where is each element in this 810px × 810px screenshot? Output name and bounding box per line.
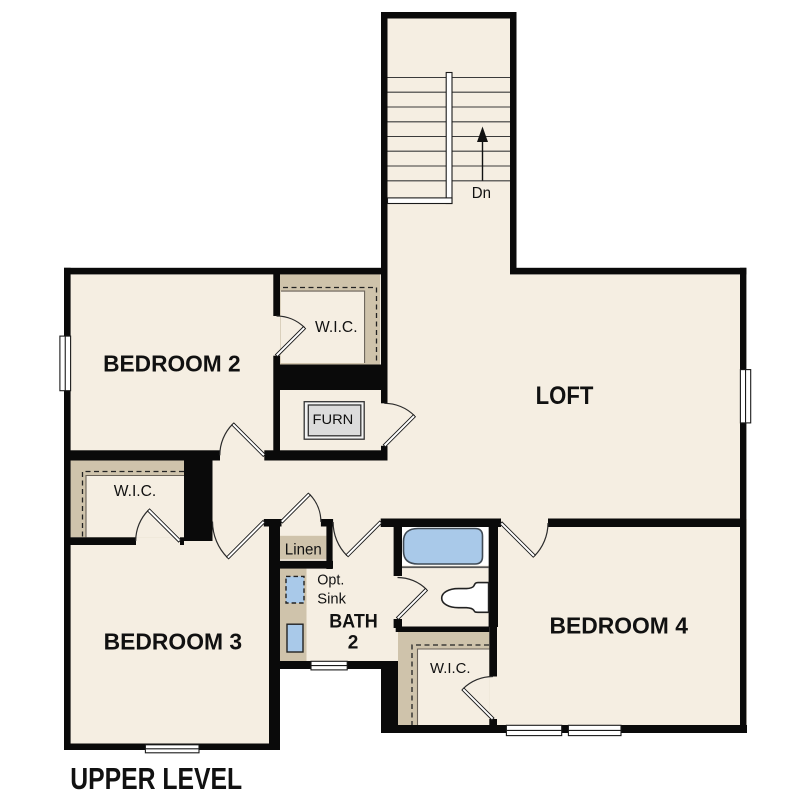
svg-text:W.I.C.: W.I.C. (114, 483, 157, 500)
svg-text:Sink: Sink (317, 590, 346, 607)
svg-text:2: 2 (348, 632, 359, 653)
svg-text:BEDROOM 2: BEDROOM 2 (103, 351, 241, 377)
svg-text:Opt.: Opt. (317, 571, 344, 588)
svg-text:W.I.C.: W.I.C. (430, 661, 471, 677)
svg-text:W.I.C.: W.I.C. (315, 319, 358, 336)
svg-text:FURN: FURN (313, 411, 354, 427)
svg-text:BATH: BATH (329, 612, 378, 633)
svg-text:Linen: Linen (285, 542, 322, 559)
svg-text:LOFT: LOFT (536, 382, 594, 410)
svg-text:Dn: Dn (472, 185, 491, 202)
svg-text:UPPER LEVEL: UPPER LEVEL (70, 761, 242, 796)
svg-text:BEDROOM 3: BEDROOM 3 (104, 628, 243, 654)
svg-text:BEDROOM 4: BEDROOM 4 (549, 612, 688, 638)
